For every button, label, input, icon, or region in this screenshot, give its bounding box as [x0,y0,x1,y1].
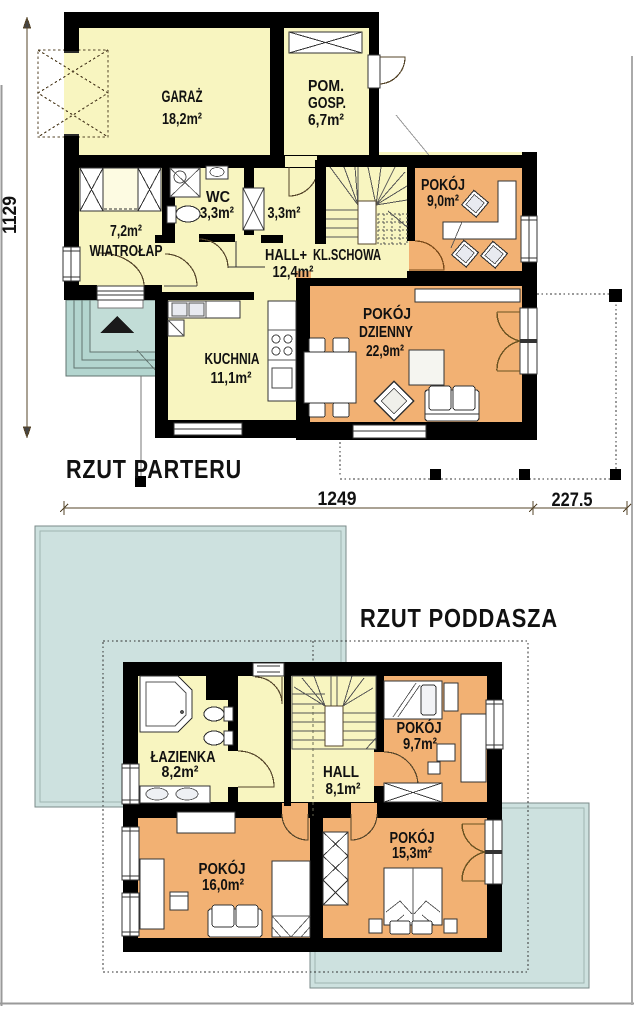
svg-text:POM.: POM. [308,78,344,95]
svg-text:16,0m²: 16,0m² [202,877,244,894]
svg-text:12,4m²: 12,4m² [273,264,314,281]
svg-text:11,1m²: 11,1m² [211,370,252,387]
svg-text:POKÓJ: POKÓJ [397,718,442,737]
svg-text:6,7m²: 6,7m² [308,112,344,129]
svg-text:POKÓJ: POKÓJ [421,175,465,194]
svg-text:RZUT PARTERU: RZUT PARTERU [66,454,242,484]
svg-text:DZIENNY: DZIENNY [359,324,413,341]
svg-text:8,2m²: 8,2m² [162,764,199,781]
svg-text:WIATROŁAP: WIATROŁAP [90,243,163,260]
svg-text:GARAŻ: GARAŻ [162,88,203,106]
svg-text:9,0m²: 9,0m² [427,193,459,210]
svg-text:3,3m²: 3,3m² [200,205,234,222]
svg-text:POKÓJ: POKÓJ [363,304,411,323]
svg-text:RZUT PODDASZA: RZUT PODDASZA [360,603,558,633]
svg-text:KUCHNIA: KUCHNIA [205,351,260,368]
svg-text:1129: 1129 [0,196,21,234]
svg-text:GOSP.: GOSP. [308,95,346,112]
svg-text:9,7m²: 9,7m² [403,736,437,753]
svg-text:18,2m²: 18,2m² [162,111,202,128]
svg-text:3,3m²: 3,3m² [268,205,301,222]
svg-text:15,3m²: 15,3m² [392,845,432,862]
svg-text:22,9m²: 22,9m² [366,343,404,360]
svg-text:HALL: HALL [323,764,359,781]
svg-text:KL.SCHOWA: KL.SCHOWA [313,247,381,264]
svg-text:8,1m²: 8,1m² [326,781,361,798]
svg-text:1249: 1249 [318,489,357,510]
svg-text:7,2m²: 7,2m² [110,223,142,240]
svg-text:HALL+: HALL+ [265,247,307,264]
svg-text:227.5: 227.5 [552,490,593,511]
svg-text:POKÓJ: POKÓJ [199,859,246,878]
svg-text:WC: WC [206,189,230,206]
